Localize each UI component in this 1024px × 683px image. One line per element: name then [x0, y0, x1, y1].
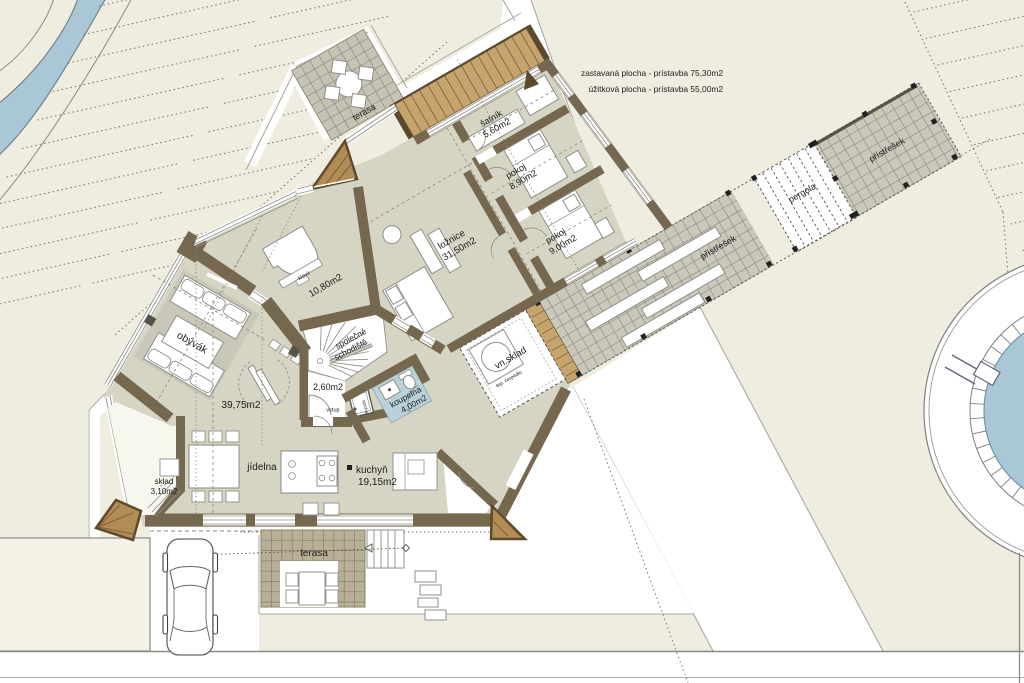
svg-text:jídelna: jídelna: [246, 462, 277, 473]
svg-text:19,15m2: 19,15m2: [358, 477, 397, 488]
svg-text:39,75m2: 39,75m2: [222, 400, 261, 411]
svg-text:úžitková plocha - prístavba 55: úžitková plocha - prístavba 55,00m2: [588, 84, 723, 94]
svg-text:kuchyň: kuchyň: [356, 465, 388, 476]
svg-text:sklad: sklad: [155, 477, 174, 486]
svg-text:3,10m2: 3,10m2: [151, 487, 178, 496]
svg-text:zastavaná plocha - prístavba 7: zastavaná plocha - prístavba 75,30m2: [581, 68, 723, 78]
svg-text:2,60m2: 2,60m2: [313, 382, 343, 392]
svg-text:terasa: terasa: [300, 548, 328, 559]
svg-text:vstup: vstup: [326, 408, 339, 414]
